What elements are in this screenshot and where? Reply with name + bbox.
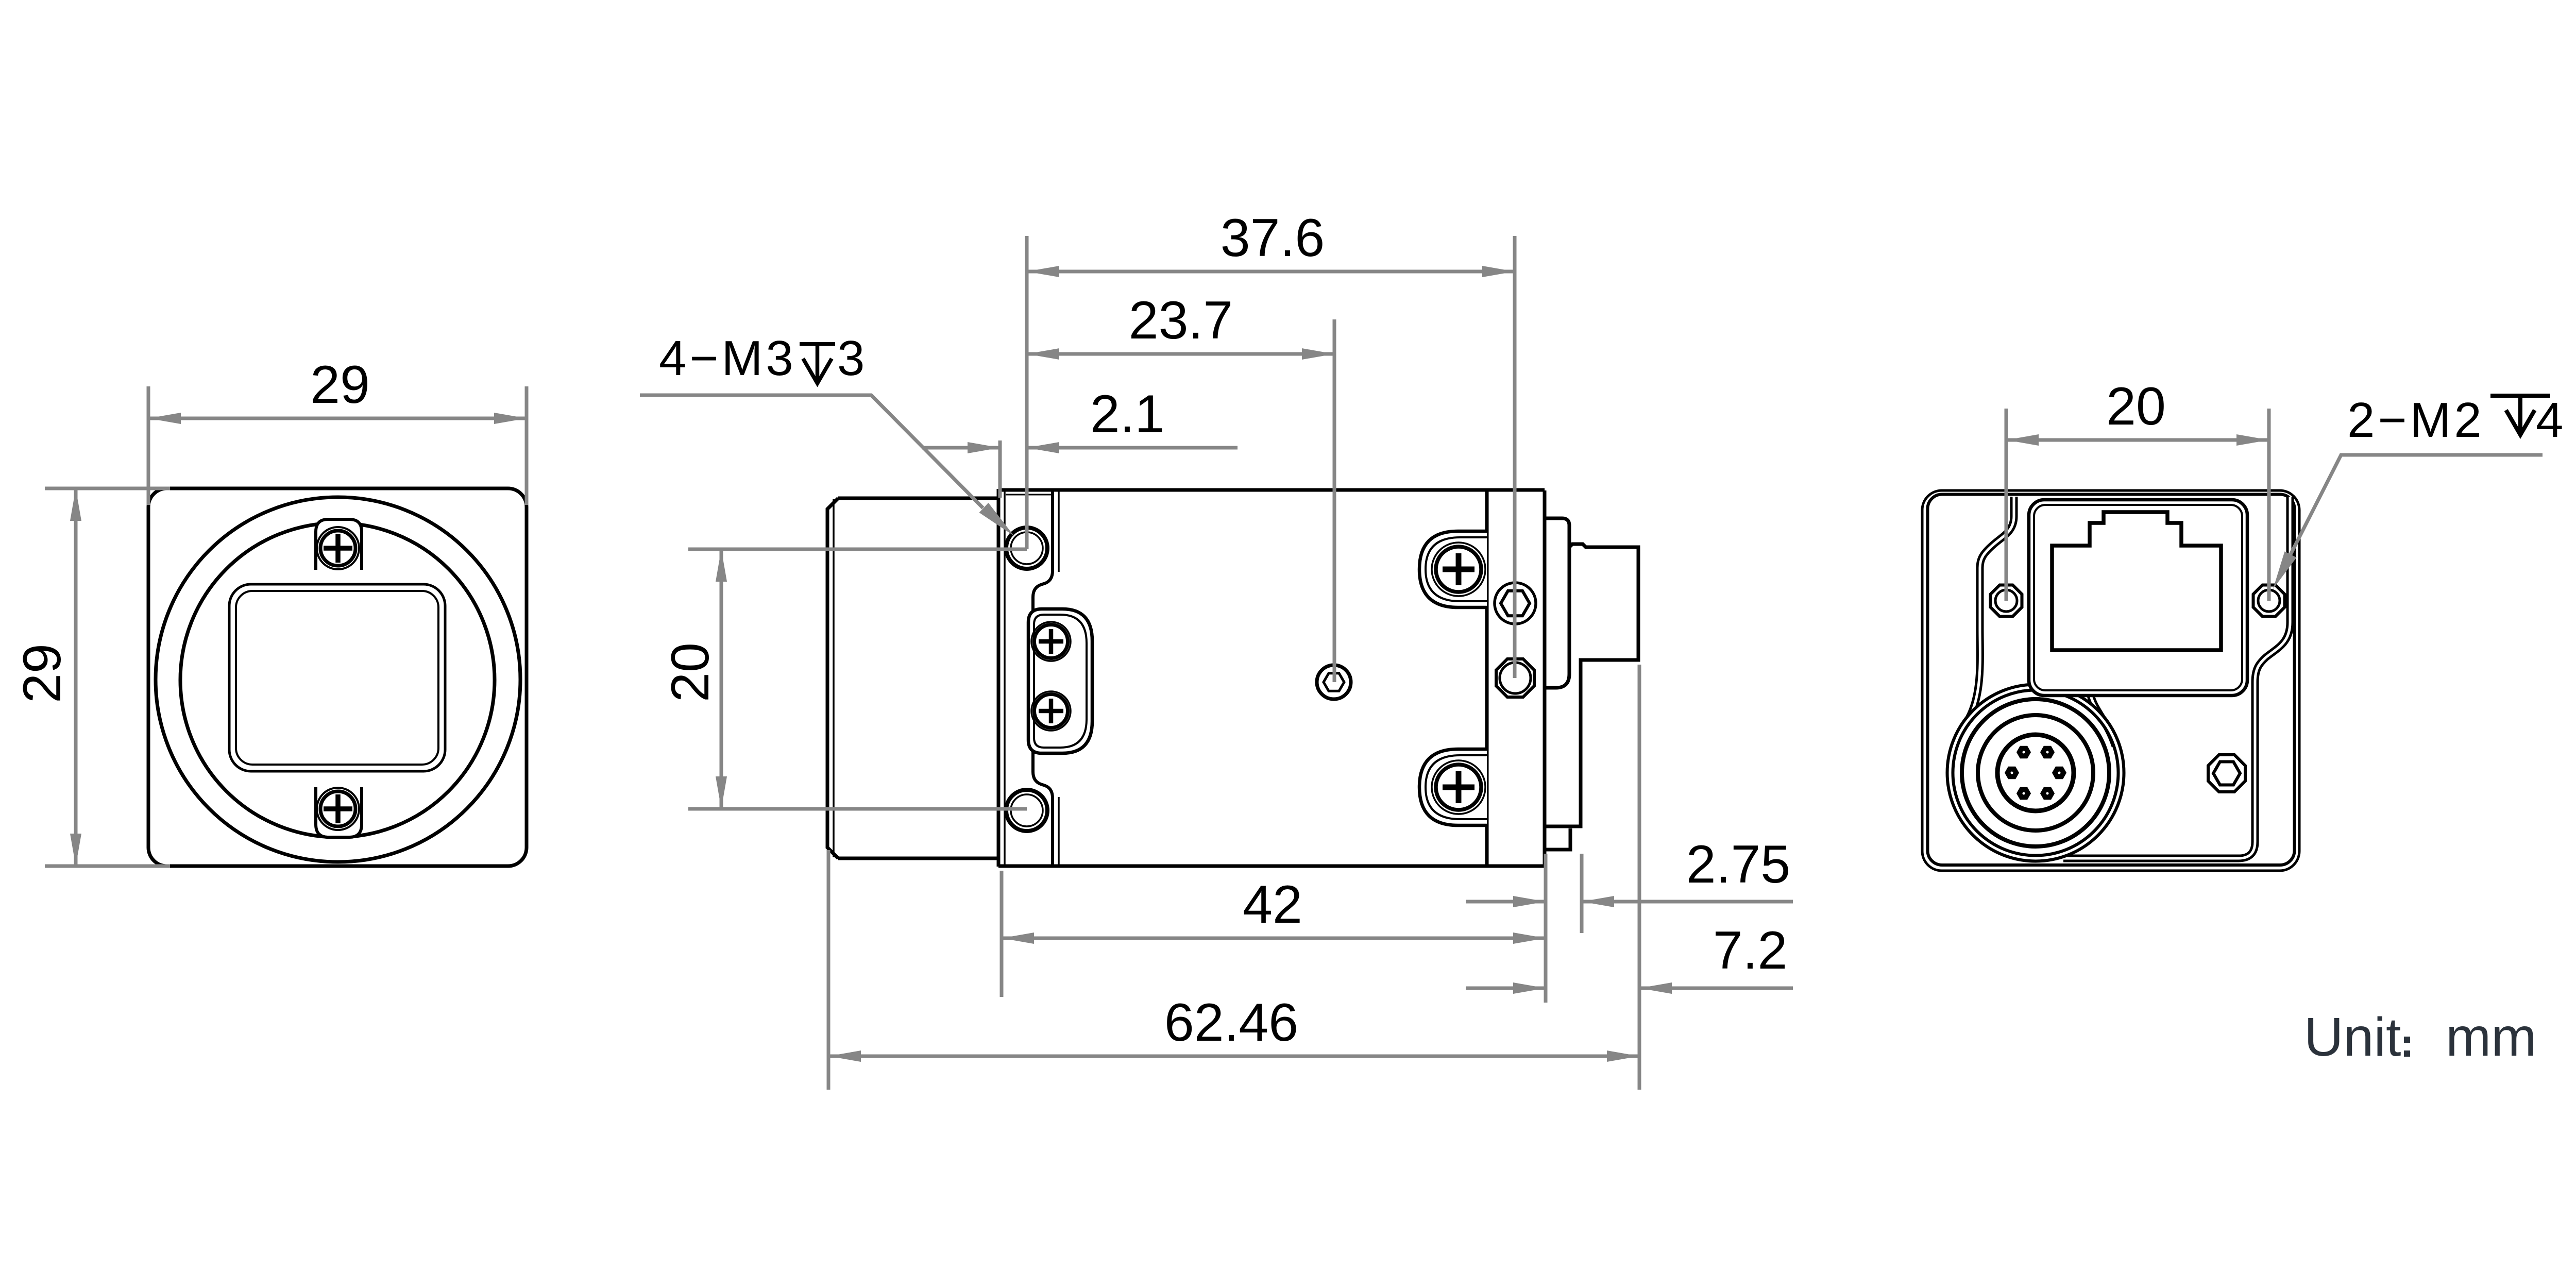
svg-text:29: 29	[12, 643, 72, 703]
svg-text:29: 29	[310, 355, 370, 415]
svg-text:Unit: Unit	[2304, 1007, 2401, 1067]
svg-text:2.75: 2.75	[1686, 835, 1790, 894]
svg-text:mm: mm	[2446, 1007, 2537, 1067]
svg-text:2−M2: 2−M2	[2347, 393, 2485, 448]
svg-text:42: 42	[1243, 875, 1302, 935]
svg-text:2.1: 2.1	[1090, 384, 1165, 444]
svg-text:62.46: 62.46	[1164, 993, 1298, 1053]
svg-text:7.2: 7.2	[1713, 921, 1788, 980]
svg-text:4−M3: 4−M3	[659, 331, 796, 386]
svg-text:3: 3	[837, 331, 865, 386]
svg-text:20: 20	[2106, 377, 2166, 436]
svg-text:23.7: 23.7	[1129, 291, 1233, 350]
svg-text:37.6: 37.6	[1221, 208, 1325, 268]
svg-text:20: 20	[660, 642, 720, 702]
svg-text:4: 4	[2536, 393, 2563, 448]
